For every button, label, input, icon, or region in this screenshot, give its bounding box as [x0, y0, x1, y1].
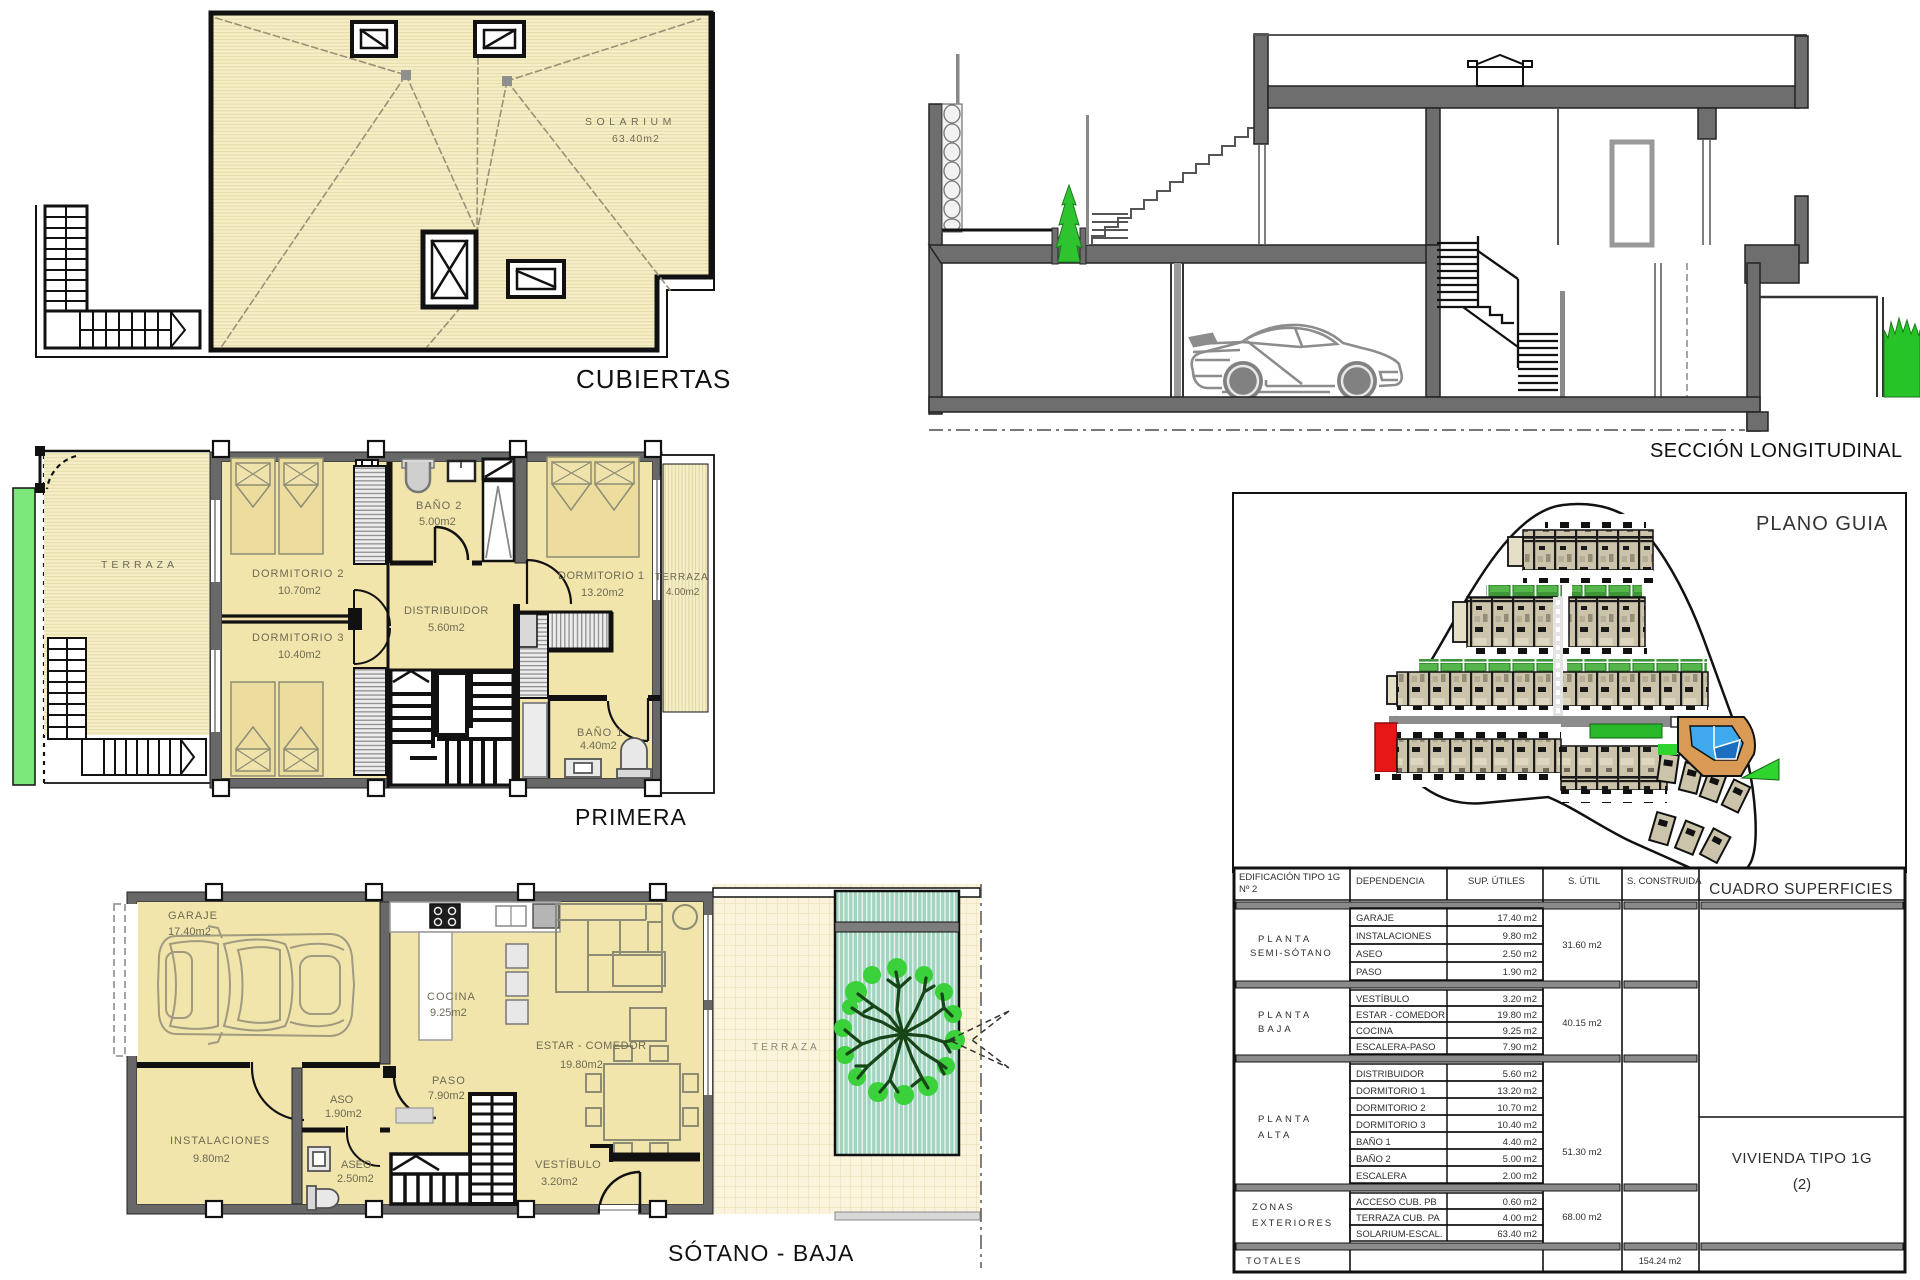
- svg-text:Nº 2: Nº 2: [1239, 884, 1257, 895]
- svg-text:SÓTANO - BAJA: SÓTANO - BAJA: [668, 1240, 854, 1266]
- svg-text:5.00m2: 5.00m2: [419, 516, 456, 528]
- svg-text:INSTALACIONES: INSTALACIONES: [170, 1135, 270, 1147]
- svg-text:SOLARIUM-ESCAL.: SOLARIUM-ESCAL.: [1356, 1229, 1443, 1240]
- svg-text:ALTA: ALTA: [1258, 1130, 1292, 1141]
- svg-text:68.00 m2: 68.00 m2: [1562, 1212, 1602, 1223]
- svg-text:S. CONSTRUIDA: S. CONSTRUIDA: [1627, 876, 1702, 887]
- svg-text:4.40 m2: 4.40 m2: [1503, 1137, 1537, 1148]
- svg-text:13.20 m2: 13.20 m2: [1497, 1086, 1537, 1097]
- svg-text:GARAJE: GARAJE: [1356, 913, 1394, 924]
- svg-text:TERRAZA: TERRAZA: [655, 572, 709, 583]
- svg-text:0.60 m2: 0.60 m2: [1503, 1197, 1537, 1208]
- svg-text:TOTALES: TOTALES: [1246, 1256, 1302, 1267]
- svg-text:PLANO GUIA: PLANO GUIA: [1756, 513, 1888, 535]
- svg-text:2.50 m2: 2.50 m2: [1503, 949, 1537, 960]
- svg-text:DORMITORIO 3: DORMITORIO 3: [252, 632, 344, 644]
- svg-text:ASEO: ASEO: [341, 1159, 372, 1171]
- svg-text:1.90 m2: 1.90 m2: [1503, 967, 1537, 978]
- svg-text:63.40m2: 63.40m2: [612, 133, 660, 145]
- svg-text:ESCALERA-PASO: ESCALERA-PASO: [1356, 1042, 1436, 1053]
- svg-text:1.90m2: 1.90m2: [325, 1108, 362, 1120]
- svg-text:3.20m2: 3.20m2: [541, 1176, 578, 1188]
- svg-text:BAÑO 1: BAÑO 1: [1356, 1137, 1391, 1148]
- svg-text:4.40m2: 4.40m2: [580, 740, 617, 752]
- svg-text:PASO: PASO: [1356, 967, 1382, 978]
- svg-text:9.80m2: 9.80m2: [193, 1153, 230, 1165]
- svg-text:SUP. ÚTILES: SUP. ÚTILES: [1468, 876, 1525, 887]
- svg-text:TERRAZA: TERRAZA: [101, 559, 178, 571]
- svg-text:ESTAR - COMEDOR: ESTAR - COMEDOR: [536, 1040, 647, 1052]
- svg-text:BAÑO 2: BAÑO 2: [416, 499, 462, 512]
- svg-text:DEPENDENCIA: DEPENDENCIA: [1356, 876, 1425, 887]
- svg-text:GARAJE: GARAJE: [168, 910, 218, 922]
- svg-text:9.25m2: 9.25m2: [430, 1007, 467, 1019]
- svg-text:9.25 m2: 9.25 m2: [1503, 1026, 1537, 1037]
- svg-text:EXTERIORES: EXTERIORES: [1252, 1218, 1333, 1229]
- svg-text:SOLARIUM: SOLARIUM: [585, 116, 676, 128]
- svg-text:PLANTA: PLANTA: [1258, 934, 1312, 945]
- svg-text:SEMI-SÓTANO: SEMI-SÓTANO: [1250, 948, 1332, 959]
- svg-text:INSTALACIONES: INSTALACIONES: [1356, 931, 1431, 942]
- svg-text:PASO: PASO: [432, 1075, 466, 1087]
- svg-text:7.90 m2: 7.90 m2: [1503, 1042, 1537, 1053]
- svg-text:5.00 m2: 5.00 m2: [1503, 1154, 1537, 1165]
- svg-text:COCINA: COCINA: [1356, 1026, 1394, 1037]
- svg-text:S. ÚTIL: S. ÚTIL: [1568, 876, 1600, 887]
- svg-text:10.70 m2: 10.70 m2: [1497, 1103, 1537, 1114]
- svg-text:ASEO: ASEO: [1356, 949, 1382, 960]
- svg-text:ESCALERA: ESCALERA: [1356, 1171, 1407, 1182]
- svg-text:31.60 m2: 31.60 m2: [1562, 940, 1602, 951]
- svg-text:PRIMERA: PRIMERA: [575, 804, 687, 830]
- svg-text:9.80 m2: 9.80 m2: [1503, 931, 1537, 942]
- svg-text:ZONAS: ZONAS: [1252, 1202, 1295, 1213]
- svg-text:(2): (2): [1793, 1176, 1811, 1193]
- svg-text:5.60m2: 5.60m2: [428, 622, 465, 634]
- svg-text:DORMITORIO 1: DORMITORIO 1: [558, 570, 644, 582]
- svg-text:EDIFICACIÓN TIPO 1G: EDIFICACIÓN TIPO 1G: [1239, 872, 1340, 883]
- svg-text:10.40m2: 10.40m2: [278, 649, 321, 661]
- svg-text:TERRAZA CUB. PA: TERRAZA CUB. PA: [1356, 1213, 1440, 1224]
- svg-text:DORMITORIO 2: DORMITORIO 2: [1356, 1103, 1426, 1114]
- svg-text:BAÑO 1: BAÑO 1: [577, 726, 623, 739]
- svg-text:4.00 m2: 4.00 m2: [1503, 1213, 1537, 1224]
- svg-text:19.80m2: 19.80m2: [560, 1059, 603, 1071]
- svg-text:DORMITORIO 1: DORMITORIO 1: [1356, 1086, 1426, 1097]
- svg-text:DORMITORIO 2: DORMITORIO 2: [252, 568, 344, 580]
- svg-text:DISTRIBUIDOR: DISTRIBUIDOR: [1356, 1069, 1424, 1080]
- svg-text:10.70m2: 10.70m2: [278, 585, 321, 597]
- svg-text:CUBIERTAS: CUBIERTAS: [576, 364, 731, 394]
- svg-text:DISTRIBUIDOR: DISTRIBUIDOR: [404, 605, 489, 617]
- svg-text:VESTÍBULO: VESTÍBULO: [535, 1158, 601, 1171]
- svg-text:ESTAR - COMEDOR: ESTAR - COMEDOR: [1356, 1010, 1445, 1021]
- svg-text:PLANTA: PLANTA: [1258, 1010, 1312, 1021]
- svg-text:17.40m2: 17.40m2: [168, 926, 211, 938]
- svg-text:TERRAZA: TERRAZA: [752, 1042, 820, 1053]
- svg-text:PLANTA: PLANTA: [1258, 1114, 1312, 1125]
- svg-text:COCINA: COCINA: [427, 991, 476, 1003]
- svg-text:154.24 m2: 154.24 m2: [1639, 1256, 1682, 1266]
- svg-text:4.00m2: 4.00m2: [666, 587, 700, 598]
- svg-text:19.80 m2: 19.80 m2: [1497, 1010, 1537, 1021]
- svg-text:3.20 m2: 3.20 m2: [1503, 994, 1537, 1005]
- svg-text:ACCESO CUB. PB: ACCESO CUB. PB: [1356, 1197, 1437, 1208]
- svg-text:2.00 m2: 2.00 m2: [1503, 1171, 1537, 1182]
- svg-text:VESTÍBULO: VESTÍBULO: [1356, 994, 1409, 1005]
- svg-text:BAÑO 2: BAÑO 2: [1356, 1154, 1391, 1165]
- svg-text:51.30 m2: 51.30 m2: [1562, 1147, 1602, 1158]
- svg-text:SECCIÓN LONGITUDINAL: SECCIÓN LONGITUDINAL: [1650, 439, 1902, 462]
- svg-text:5.60 m2: 5.60 m2: [1503, 1069, 1537, 1080]
- svg-text:VIVIENDA TIPO 1G: VIVIENDA TIPO 1G: [1732, 1150, 1872, 1167]
- svg-text:2.50m2: 2.50m2: [337, 1173, 374, 1185]
- svg-text:63.40 m2: 63.40 m2: [1497, 1229, 1537, 1240]
- svg-text:ASO: ASO: [330, 1094, 354, 1106]
- svg-text:13.20m2: 13.20m2: [581, 587, 624, 599]
- svg-text:10.40 m2: 10.40 m2: [1497, 1120, 1537, 1131]
- svg-text:BAJA: BAJA: [1258, 1024, 1294, 1035]
- svg-text:DORMITORIO 3: DORMITORIO 3: [1356, 1120, 1426, 1131]
- svg-text:CUADRO SUPERFICIES: CUADRO SUPERFICIES: [1709, 881, 1893, 898]
- svg-text:17.40 m2: 17.40 m2: [1497, 913, 1537, 924]
- svg-text:7.90m2: 7.90m2: [428, 1090, 465, 1102]
- svg-text:40.15 m2: 40.15 m2: [1562, 1018, 1602, 1029]
